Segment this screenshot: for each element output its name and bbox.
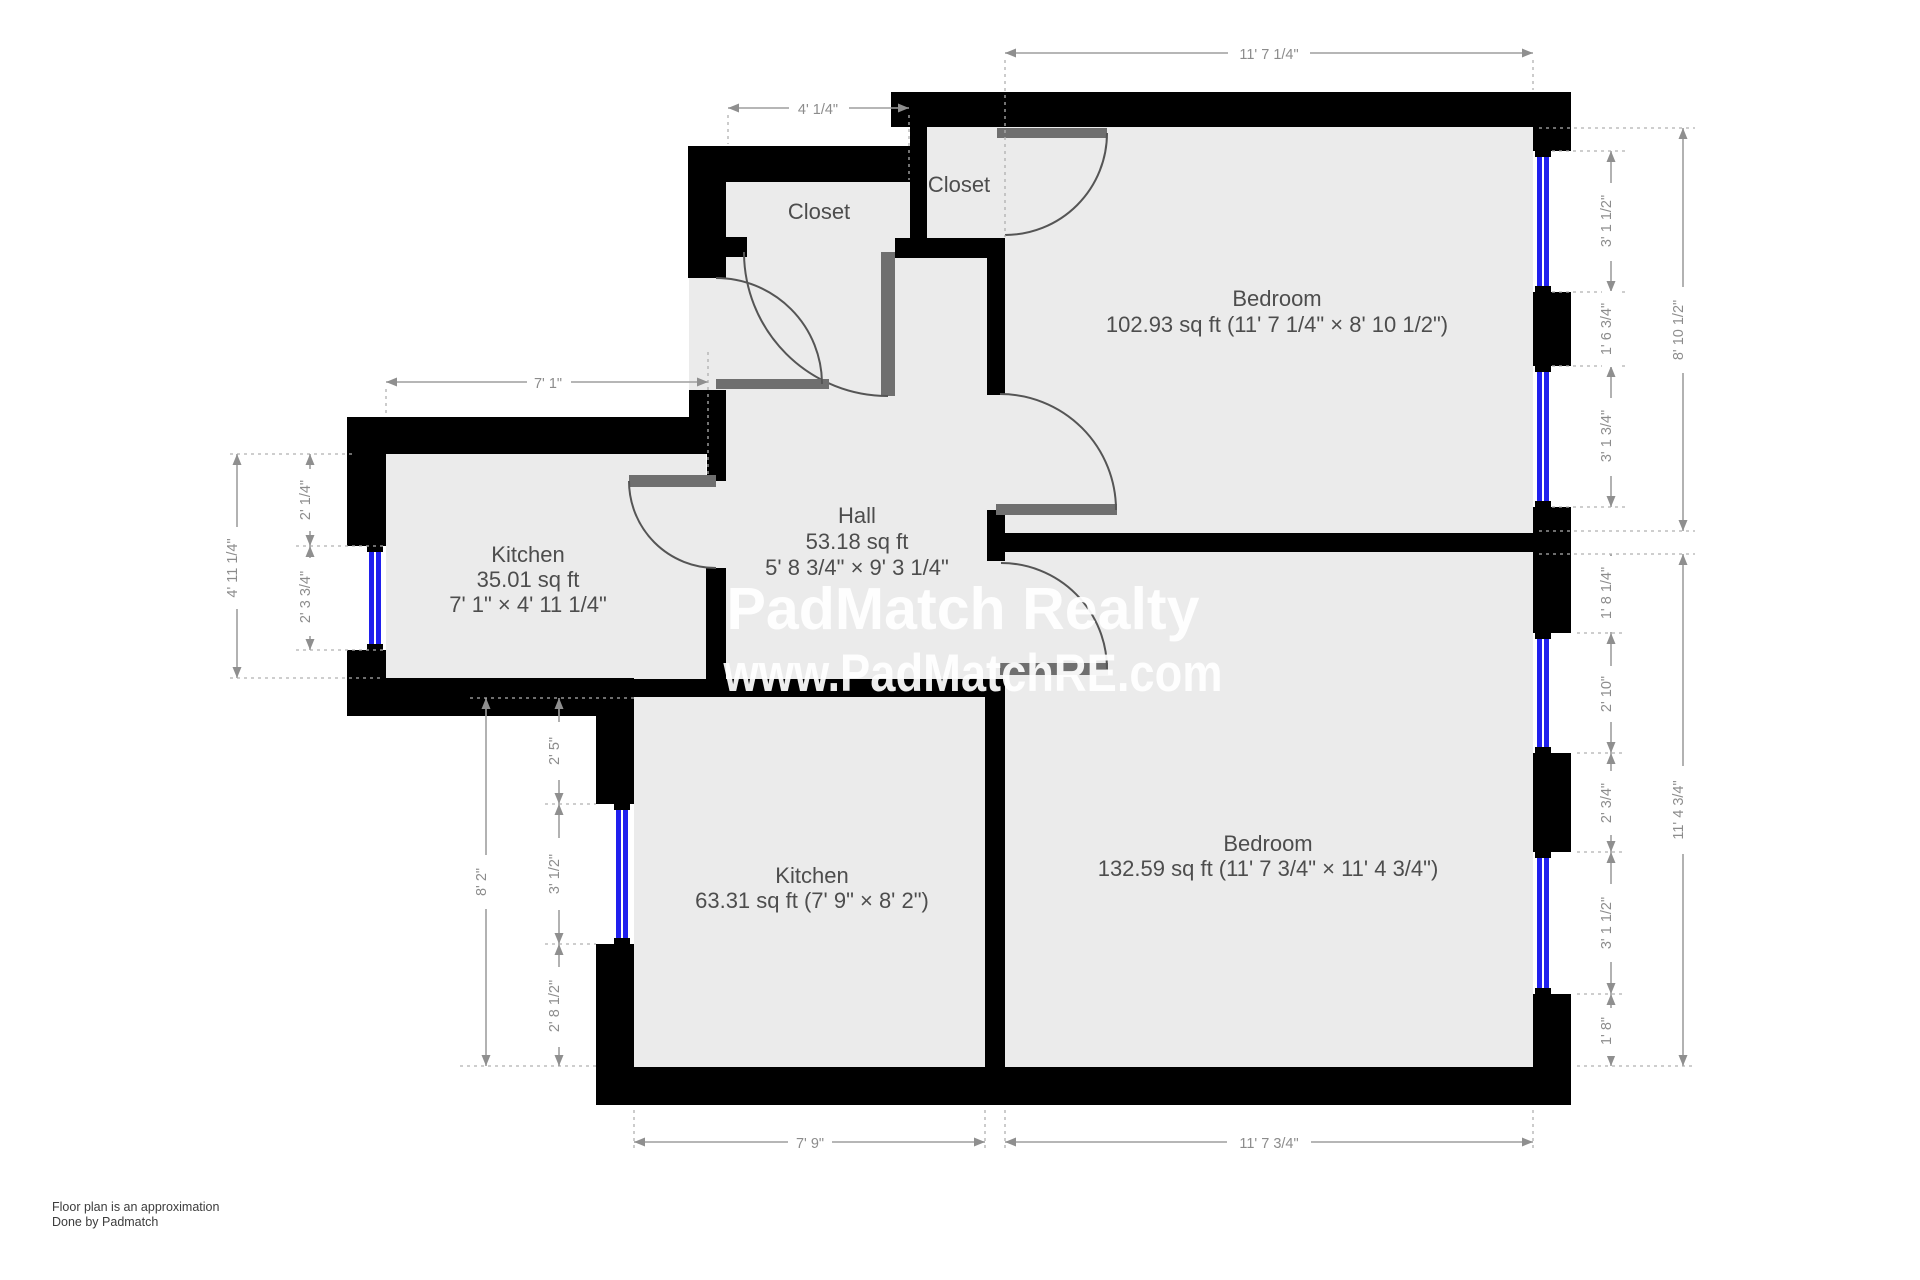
svg-text:Kitchen: Kitchen [775,863,848,888]
svg-text:11' 7 1/4": 11' 7 1/4" [1239,47,1298,63]
svg-text:2' 3 3/4": 2' 3 3/4" [298,571,314,623]
svg-text:Closet: Closet [788,199,850,224]
svg-text:Done by Padmatch: Done by Padmatch [52,1215,158,1229]
svg-text:2' 8 1/2": 2' 8 1/2" [547,980,563,1032]
svg-text:7' 1" × 4' 11 1/4": 7' 1" × 4' 11 1/4" [449,592,607,617]
svg-text:53.18 sq ft: 53.18 sq ft [806,529,909,554]
svg-text:2' 3/4": 2' 3/4" [1599,783,1615,823]
svg-text:Hall: Hall [838,503,876,528]
svg-text:Floor plan is an approximation: Floor plan is an approximation [52,1200,219,1214]
svg-text:11' 4 3/4": 11' 4 3/4" [1671,780,1687,839]
svg-text:7' 1": 7' 1" [534,376,562,392]
svg-text:Bedroom: Bedroom [1223,831,1312,856]
svg-text:3' 1 3/4": 3' 1 3/4" [1599,410,1615,462]
svg-text:2' 10": 2' 10" [1599,676,1615,712]
svg-text:3' 1 1/2": 3' 1 1/2" [1599,897,1615,949]
svg-text:3' 1 1/2": 3' 1 1/2" [1599,195,1615,247]
svg-text:1' 8 1/4": 1' 8 1/4" [1599,567,1615,619]
svg-text:3' 1/2": 3' 1/2" [547,854,563,894]
svg-text:7' 9": 7' 9" [796,1136,824,1152]
svg-text:1' 6 3/4": 1' 6 3/4" [1599,303,1615,355]
svg-text:11' 7 3/4": 11' 7 3/4" [1239,1136,1298,1152]
svg-text:132.59 sq ft (11' 7 3/4" × 11': 132.59 sq ft (11' 7 3/4" × 11' 4 3/4") [1098,856,1439,881]
svg-text:4' 11 1/4": 4' 11 1/4" [225,538,241,597]
svg-text:Closet: Closet [928,172,990,197]
svg-text:www.PadMatchRE.com: www.PadMatchRE.com [723,644,1223,703]
svg-text:35.01 sq ft: 35.01 sq ft [477,567,580,592]
svg-text:63.31 sq ft (7' 9" × 8' 2"): 63.31 sq ft (7' 9" × 8' 2") [695,888,929,913]
svg-text:2' 5": 2' 5" [547,737,563,765]
svg-text:Kitchen: Kitchen [491,542,564,567]
svg-text:2' 1/4": 2' 1/4" [298,480,314,520]
svg-text:PadMatch Realty: PadMatch Realty [727,576,1200,642]
svg-text:Bedroom: Bedroom [1232,286,1321,311]
svg-text:102.93 sq ft (11' 7 1/4" × 8': 102.93 sq ft (11' 7 1/4" × 8' 10 1/2") [1106,312,1448,337]
svg-text:8' 2": 8' 2" [474,868,490,896]
svg-text:1' 8": 1' 8" [1599,1017,1615,1045]
svg-text:4' 1/4": 4' 1/4" [798,102,838,118]
svg-text:8' 10 1/2": 8' 10 1/2" [1671,300,1687,360]
